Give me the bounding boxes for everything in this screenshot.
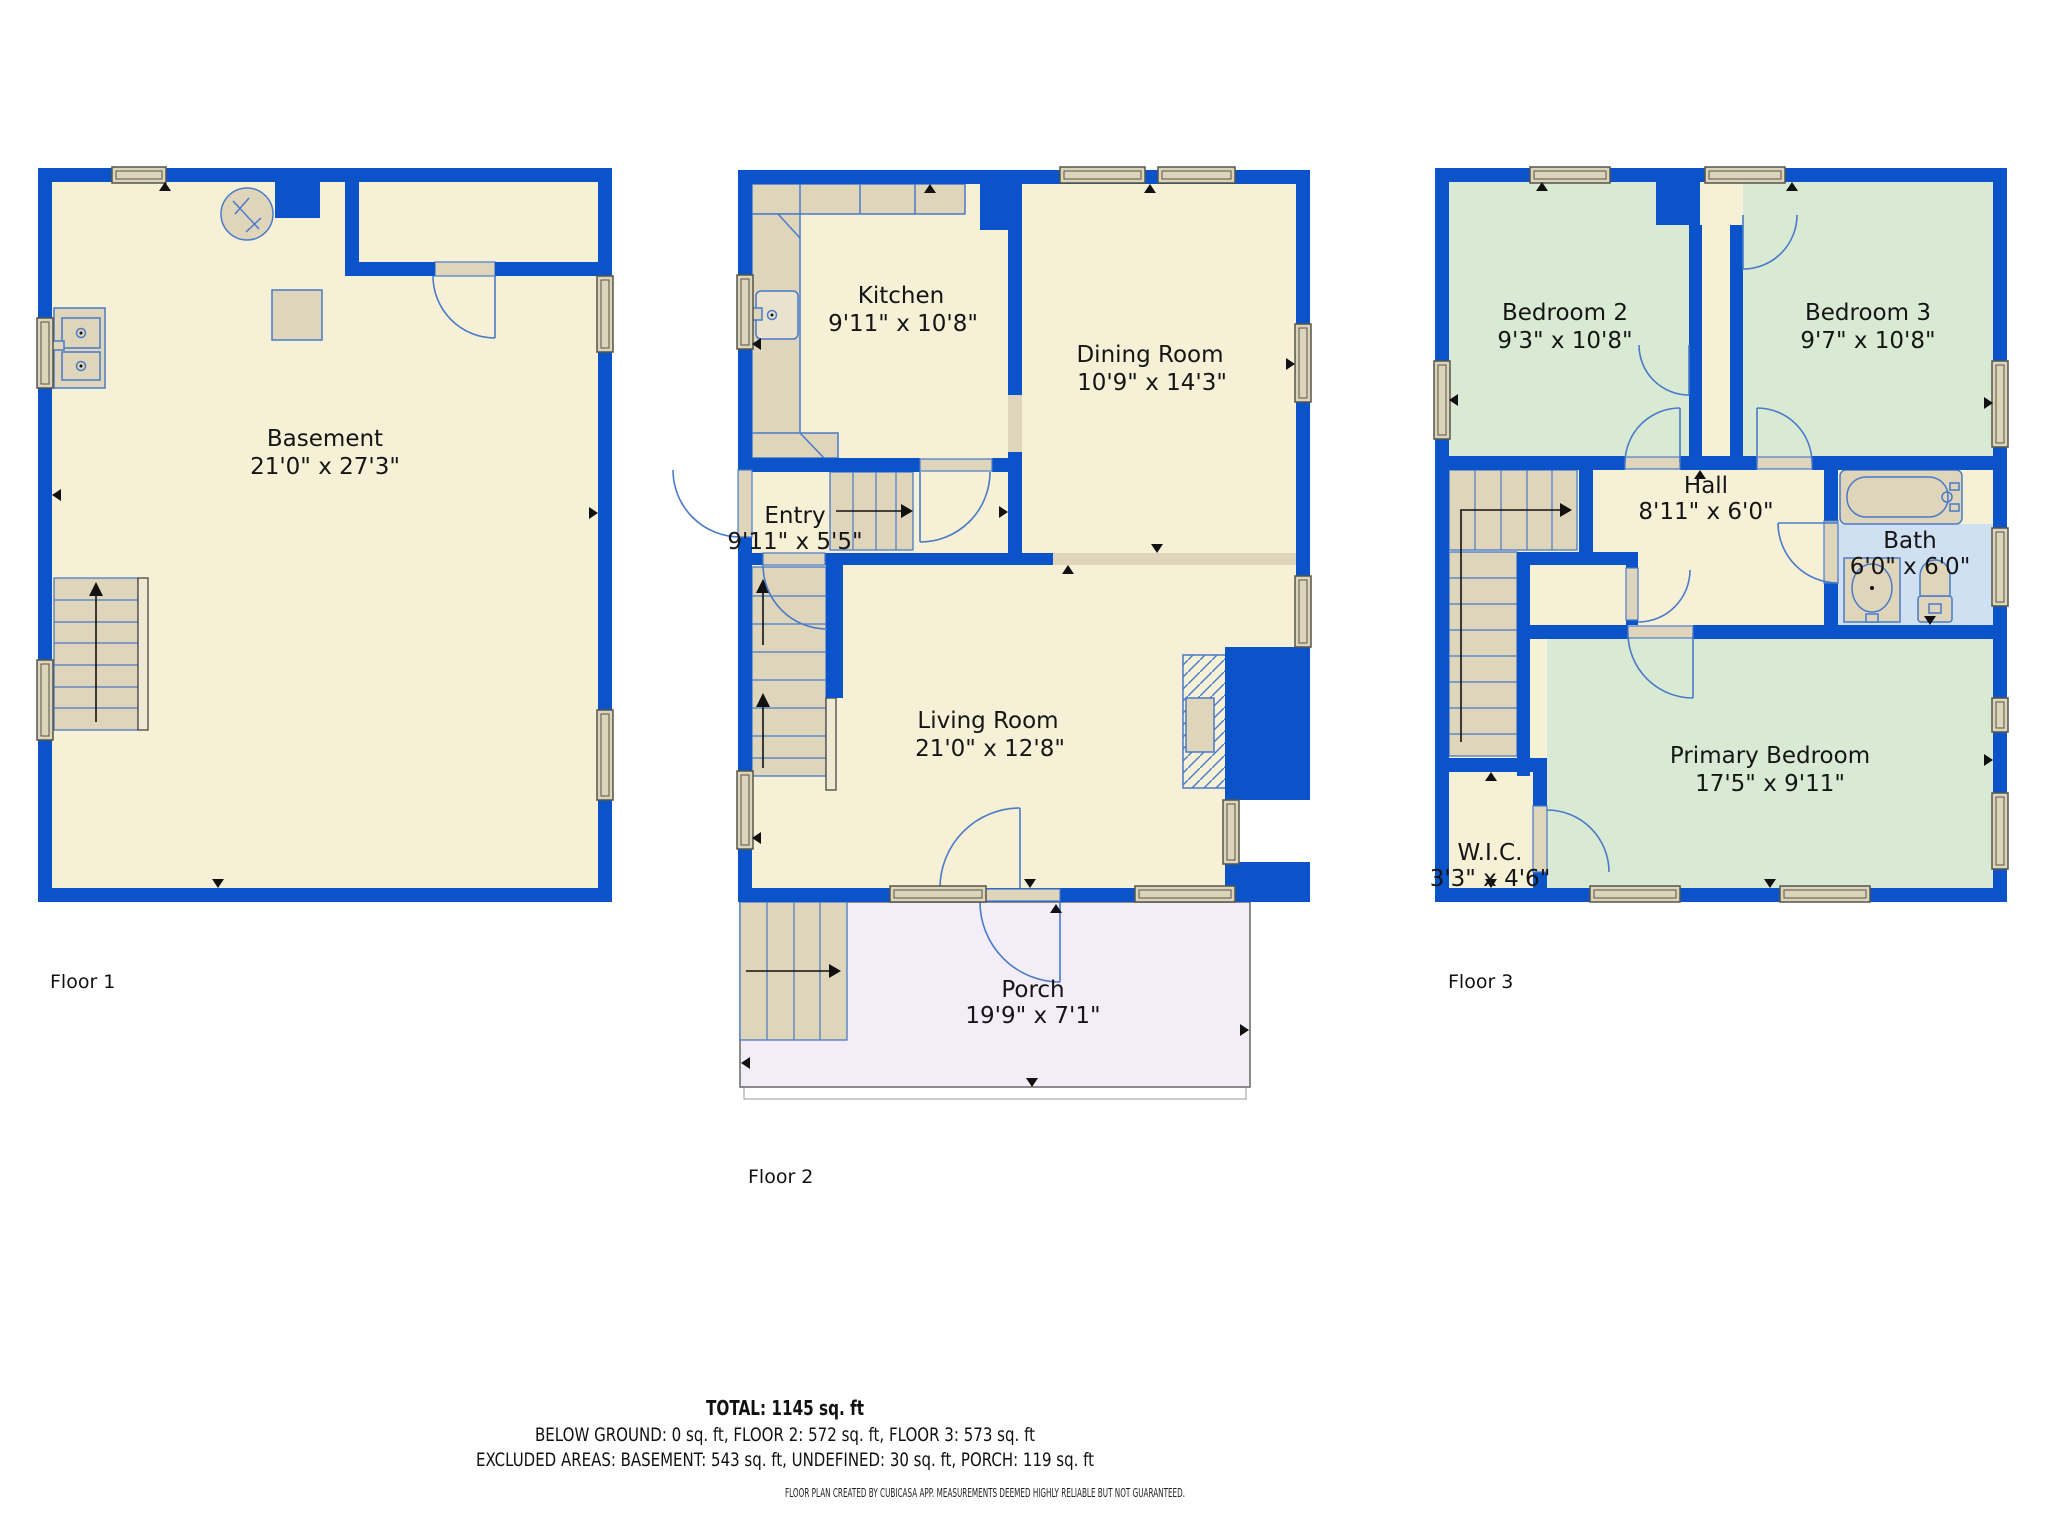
front-door: [738, 470, 752, 537]
room-dims-kitchen: 9'11" x 10'8": [828, 311, 978, 337]
furnace-icon: [272, 290, 322, 340]
bedroom3-door: [1757, 457, 1812, 469]
floor3-chimney-block: [1656, 168, 1700, 225]
floor1-caption: Floor 1: [50, 971, 115, 993]
room-label-living: Living Room: [917, 708, 1058, 734]
room-dims-hall: 8'11" x 6'0": [1638, 499, 1773, 525]
bedroom2-door: [1625, 457, 1680, 469]
fireplace-icon: [1183, 655, 1228, 788]
summary-excluded: EXCLUDED AREAS: BASEMENT: 543 sq. ft, UN…: [476, 1449, 1094, 1471]
room-label-kitchen: Kitchen: [858, 283, 944, 309]
storage-door: [435, 262, 495, 276]
disclaimer: FLOOR PLAN CREATED BY CUBICASA APP. MEAS…: [785, 1486, 1185, 1500]
front-door-arc: [673, 470, 740, 537]
porch-door: [980, 889, 1060, 901]
floor3-caption: Floor 3: [1448, 971, 1513, 993]
primary-door: [1628, 626, 1693, 638]
room-label-wic: W.I.C.: [1458, 840, 1523, 866]
floor2-caption: Floor 2: [748, 1166, 813, 1188]
laundry-sink-icon: [48, 308, 105, 388]
room-dims-primary: 17'5" x 9'11": [1695, 771, 1845, 797]
room-dims-bedroom2: 9'3" x 10'8": [1497, 328, 1632, 354]
bathtub-icon: [1840, 470, 1962, 524]
room-label-bedroom3: Bedroom 3: [1805, 300, 1931, 326]
room-dims-entry: 9'11" x 5'5": [727, 529, 862, 555]
kitchen-dining-opening: [1008, 395, 1022, 452]
room-label-basement: Basement: [267, 426, 383, 452]
basement-stairs-down-icon: [752, 567, 836, 790]
room-dims-bedroom3: 9'7" x 10'8": [1800, 328, 1935, 354]
room-label-porch: Porch: [1001, 977, 1064, 1003]
summary-total: TOTAL: 1145 sq. ft: [706, 1396, 864, 1420]
room-dims-bath: 6'0" x 6'0": [1850, 554, 1971, 580]
room-dims-wic: 3'3" x 4'6": [1430, 866, 1551, 892]
bath-door: [1824, 521, 1838, 583]
room-label-primary: Primary Bedroom: [1670, 743, 1870, 769]
floor-2-plan: Kitchen 9'11" x 10'8" Dining Room 10'9" …: [673, 167, 1311, 1099]
dining-living-opening: [1053, 553, 1296, 565]
water-heater-icon: [221, 188, 273, 240]
kitchen-sink-icon: [750, 291, 798, 339]
room-dims-porch: 19'9" x 7'1": [965, 1003, 1100, 1029]
basement-floor: [52, 182, 598, 888]
room-label-bath: Bath: [1883, 528, 1936, 554]
porch-stairs-icon: [740, 902, 847, 1040]
room-dims-dining: 10'9" x 14'3": [1077, 370, 1227, 396]
room-label-hall: Hall: [1684, 473, 1728, 499]
floorplan-drawing: Basement 21'0" x 27'3": [0, 0, 2048, 1536]
floorplan-page: Basement 21'0" x 27'3": [0, 0, 2048, 1536]
summary-by-floor: BELOW GROUND: 0 sq. ft, FLOOR 2: 572 sq.…: [535, 1424, 1035, 1446]
chimney-block: [275, 168, 320, 218]
kitchen-alcove-door: [920, 459, 992, 471]
floor-1-plan: Basement 21'0" x 27'3": [37, 167, 613, 902]
living-chimney-mass: [1225, 647, 1310, 800]
room-label-bedroom2: Bedroom 2: [1502, 300, 1628, 326]
room-dims-living: 21'0" x 12'8": [915, 736, 1065, 762]
wic-door: [1533, 806, 1547, 872]
room-label-entry: Entry: [764, 503, 825, 529]
hall-closet-door: [1626, 568, 1638, 620]
room-label-dining: Dining Room: [1076, 342, 1223, 368]
room-dims-basement: 21'0" x 27'3": [250, 454, 400, 480]
floor-3-plan: Bedroom 2 9'3" x 10'8" Bedroom 3 9'7" x …: [1430, 167, 2008, 902]
summary-block: TOTAL: 1145 sq. ft BELOW GROUND: 0 sq. f…: [476, 1396, 1185, 1500]
basement-stairs-icon: [54, 578, 148, 730]
